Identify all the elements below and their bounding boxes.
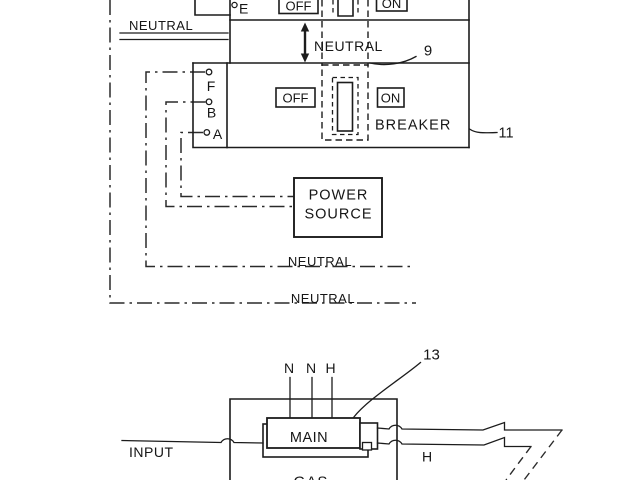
output-wires: H bbox=[378, 423, 563, 480]
bottom-figure: N N H 13 MAIN INPUT H GAS bbox=[122, 347, 562, 480]
neutral-wire-1-label: NEUTRAL bbox=[288, 254, 352, 269]
ref-11-leader-line bbox=[470, 129, 498, 133]
continuation-dash-upper bbox=[524, 430, 562, 480]
neutral-wire-2-label: NEUTRAL bbox=[291, 291, 355, 306]
power-source-label-line1: POWER bbox=[309, 188, 369, 204]
power-source-wire-a-path bbox=[181, 133, 294, 197]
appliance-label: GAS bbox=[294, 474, 329, 480]
ref-13-leader-line bbox=[354, 363, 421, 418]
nnh-drop-wires bbox=[290, 378, 332, 419]
main-label: MAIN bbox=[290, 430, 328, 446]
patent-figure-page: NEUTRAL E OFF ON bbox=[0, 0, 640, 480]
wire-n1-label: N bbox=[284, 360, 294, 376]
terminal-f-label: F bbox=[207, 78, 216, 94]
switch-handle bbox=[338, 83, 353, 132]
panel-top-left-step bbox=[195, 0, 230, 15]
power-source: POWER SOURCE bbox=[294, 178, 382, 237]
neutral-feed-lines bbox=[120, 33, 228, 40]
main-breaker-module: MAIN bbox=[263, 418, 378, 457]
lower-breaker: F B A OFF ON BREAKER 11 bbox=[204, 65, 514, 142]
double-arrow-up-icon bbox=[301, 23, 309, 32]
power-source-label-line2: SOURCE bbox=[304, 207, 372, 223]
feed-neutral-label: NEUTRAL bbox=[129, 18, 193, 33]
upper-switch-inner-dashes bbox=[333, 0, 358, 14]
input-label: INPUT bbox=[129, 444, 174, 460]
lower-off-label: OFF bbox=[283, 91, 309, 106]
patent-figure-canvas: NEUTRAL E OFF ON bbox=[0, 0, 640, 480]
wire-h-label: H bbox=[325, 360, 335, 376]
input-wire bbox=[122, 439, 263, 443]
neutral-feed: NEUTRAL bbox=[120, 18, 228, 40]
main-module-terminal-notch bbox=[363, 443, 372, 451]
double-arrow-down-icon bbox=[301, 54, 309, 63]
terminal-b-label: B bbox=[207, 105, 216, 121]
terminal-a-label: A bbox=[213, 126, 223, 142]
ref-13-numeral: 13 bbox=[423, 347, 440, 364]
upper-switch-outer-dashes bbox=[322, 0, 368, 66]
neutral-bus-band: NEUTRAL 9 bbox=[301, 23, 432, 65]
lower-breaker-left-bottom-edge bbox=[193, 63, 469, 148]
terminal-f-circle bbox=[206, 69, 212, 75]
lower-on-label: ON bbox=[381, 91, 401, 106]
wire-n2-label: N bbox=[306, 360, 316, 376]
hot-wire-lower bbox=[378, 438, 532, 447]
neutral-bus-label: NEUTRAL bbox=[314, 38, 383, 54]
terminal-e-label: E bbox=[239, 1, 248, 17]
terminal-a-circle bbox=[204, 130, 210, 136]
ref-11-numeral: 11 bbox=[498, 126, 513, 142]
top-figure: NEUTRAL E OFF ON bbox=[110, 0, 514, 306]
ref-9-numeral: 9 bbox=[424, 43, 432, 60]
upper-breaker: E OFF ON bbox=[232, 0, 407, 66]
upper-off-label: OFF bbox=[286, 0, 312, 14]
breaker-label: BREAKER bbox=[375, 118, 451, 134]
hot-wire-upper bbox=[378, 423, 563, 431]
power-source-wire-b-path bbox=[166, 102, 294, 207]
terminal-e-circle bbox=[232, 2, 237, 7]
hot-label: H bbox=[422, 449, 432, 465]
upper-on-label: ON bbox=[382, 0, 402, 11]
upper-switch-handle bbox=[338, 0, 353, 16]
